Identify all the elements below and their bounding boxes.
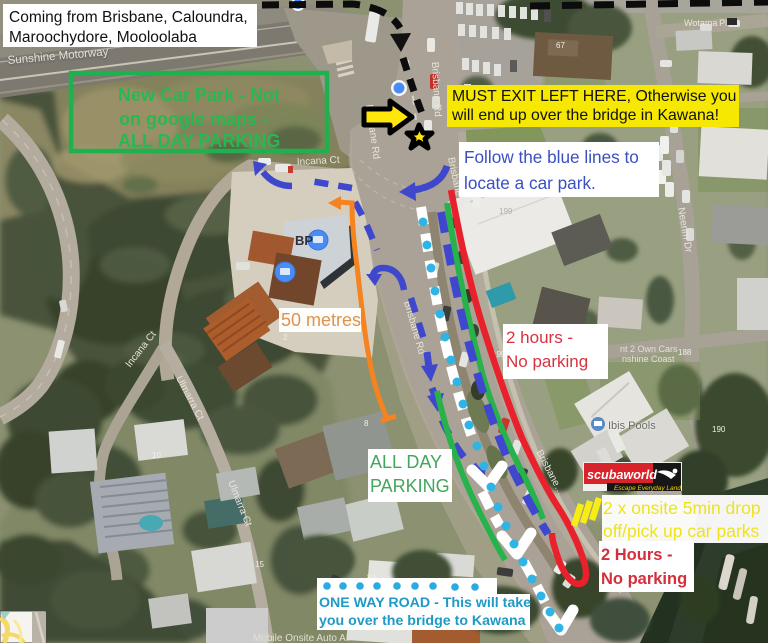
svg-text:8: 8 <box>364 419 369 428</box>
svg-text:you over the bridge to Kawana: you over the bridge to Kawana <box>319 613 526 629</box>
svg-text:MUST EXIT LEFT HERE, Otherwise: MUST EXIT LEFT HERE, Otherwise you <box>452 88 736 105</box>
svg-text:2 hours -: 2 hours - <box>506 328 573 347</box>
svg-text:locate a car park.: locate a car park. <box>464 173 596 193</box>
svg-text:2 x onsite 5min drop: 2 x onsite 5min drop <box>603 498 761 518</box>
svg-text:2 Hours -: 2 Hours - <box>601 546 673 564</box>
svg-text:199: 199 <box>499 207 513 216</box>
svg-text:off/pick up car parks: off/pick up car parks <box>603 521 760 541</box>
svg-text:190: 190 <box>712 425 726 434</box>
svg-text:2: 2 <box>283 333 288 342</box>
svg-text:on google maps -: on google maps - <box>119 109 268 129</box>
svg-text:188: 188 <box>678 348 692 357</box>
svg-text:Escape Everyday Land: Escape Everyday Land <box>614 485 681 492</box>
svg-text:BP: BP <box>295 233 313 248</box>
svg-text:PARKING: PARKING <box>370 476 450 496</box>
svg-text:nt 2 Own Cars: nt 2 Own Cars <box>620 344 678 354</box>
svg-text:scubaworld: scubaworld <box>587 468 657 482</box>
svg-text:Wotama Pl: Wotama Pl <box>684 18 727 28</box>
svg-text:Ibis Pools: Ibis Pools <box>608 420 656 432</box>
svg-text:50 metres: 50 metres <box>281 310 361 330</box>
svg-text:No parking: No parking <box>506 352 588 371</box>
svg-text:ONE WAY ROAD - This will take: ONE WAY ROAD - This will take <box>319 595 531 611</box>
svg-text:ALL DAY PARKING: ALL DAY PARKING <box>118 131 280 151</box>
svg-text:will end up over the bridge in: will end up over the bridge in Kawana! <box>451 107 719 124</box>
svg-text:10: 10 <box>152 451 161 460</box>
svg-text:nshine Coast: nshine Coast <box>622 354 675 364</box>
svg-text:New Car Park - Not: New Car Park - Not <box>118 85 280 105</box>
svg-text:Follow the blue lines to: Follow the blue lines to <box>464 147 639 167</box>
svg-text:No parking: No parking <box>601 570 687 588</box>
svg-text:Mobile Onsite Auto Air: Mobile Onsite Auto Air <box>253 633 352 643</box>
svg-text:Maroochydore, Mooloolaba: Maroochydore, Mooloolaba <box>9 29 197 46</box>
svg-text:ALL DAY: ALL DAY <box>370 452 442 472</box>
svg-text:Coming from Brisbane, Caloundr: Coming from Brisbane, Caloundra, <box>9 9 248 26</box>
svg-text:Incana Ct: Incana Ct <box>297 155 341 168</box>
svg-text:15: 15 <box>255 560 264 569</box>
svg-text:67: 67 <box>556 41 565 50</box>
